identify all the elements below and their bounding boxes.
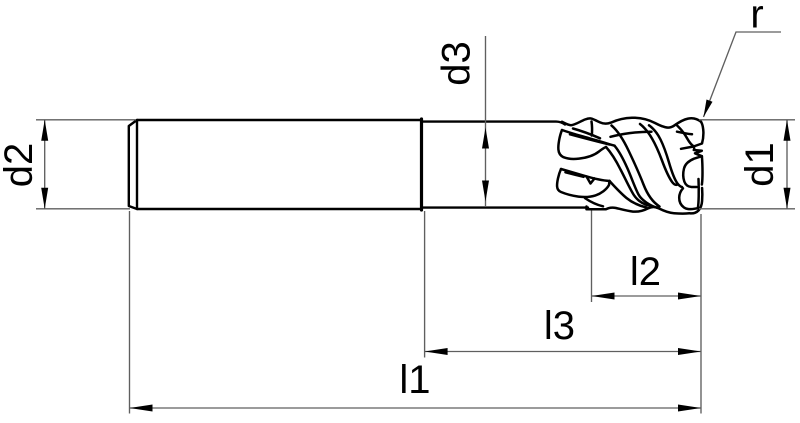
svg-text:r: r <box>750 0 763 37</box>
svg-text:d2: d2 <box>0 143 41 188</box>
svg-text:d1: d1 <box>738 142 782 187</box>
svg-text:d3: d3 <box>435 41 479 86</box>
svg-text:l3: l3 <box>544 304 575 348</box>
svg-text:l1: l1 <box>399 358 430 402</box>
svg-text:l2: l2 <box>630 250 661 294</box>
